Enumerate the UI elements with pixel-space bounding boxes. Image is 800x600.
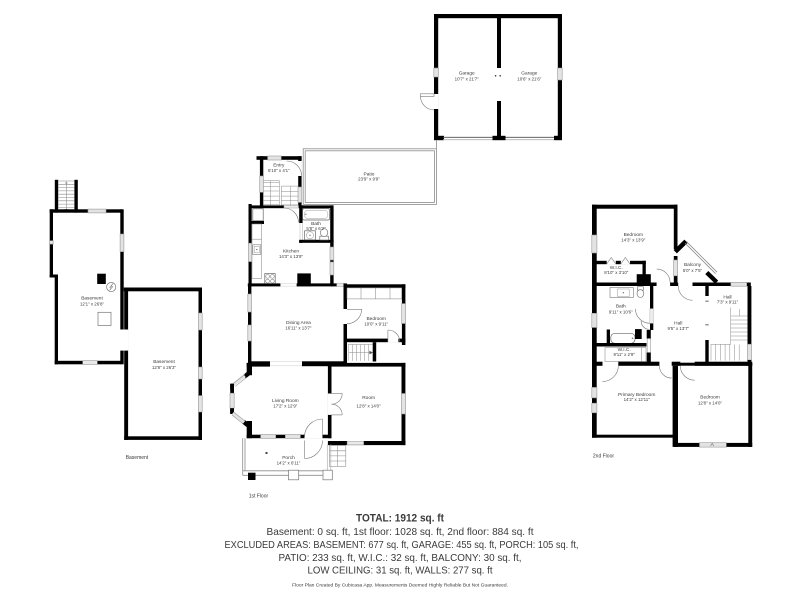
- svg-text:1st Floor: 1st Floor: [249, 493, 269, 499]
- svg-text:8'10" x 3'10": 8'10" x 3'10": [604, 270, 629, 275]
- svg-text:14'2" x 12'11": 14'2" x 12'11": [624, 397, 651, 402]
- svg-text:14'2" x 6'11": 14'2" x 6'11": [277, 461, 301, 466]
- svg-text:12'8" x 14'0": 12'8" x 14'0": [698, 400, 723, 405]
- svg-text:TOTAL: 1912 sq. ft: TOTAL: 1912 sq. ft: [356, 513, 444, 525]
- svg-text:6'10" x 4'1": 6'10" x 4'1": [268, 168, 290, 173]
- svg-text:2nd Floor: 2nd Floor: [593, 453, 614, 459]
- svg-text:9'11" x 2'9": 9'11" x 2'9": [614, 352, 636, 357]
- svg-text:Room: Room: [362, 395, 375, 401]
- svg-text:9'5" x 13'7": 9'5" x 13'7": [667, 326, 689, 331]
- svg-text:7'3" x 9'11": 7'3" x 9'11": [717, 300, 739, 305]
- svg-text:Basement: 0 sq. ft, 1st floor:: Basement: 0 sq. ft, 1st floor: 1028 sq. …: [267, 527, 534, 538]
- svg-text:12'8" x 14'0": 12'8" x 14'0": [357, 403, 382, 408]
- svg-text:14'3" x 13'9": 14'3" x 13'9": [621, 237, 646, 242]
- svg-text:LOW CEILING: 31 sq. ft, WALLS:: LOW CEILING: 31 sq. ft, WALLS: 277 sq. f…: [308, 566, 493, 577]
- svg-text:5'0" x 7'5": 5'0" x 7'5": [683, 268, 703, 273]
- svg-text:Basement: Basement: [126, 455, 149, 461]
- svg-text:Floor Plan Created By Cubicasa: Floor Plan Created By Cubicasa App. Meas…: [292, 582, 508, 588]
- svg-text:10'7" x 21'7": 10'7" x 21'7": [455, 77, 480, 82]
- svg-text:14'3" x 13'9": 14'3" x 13'9": [279, 254, 304, 259]
- svg-text:23'9" x 9'9": 23'9" x 9'9": [358, 176, 380, 181]
- svg-text:PATIO: 233 sq. ft, W.I.C.: 32: PATIO: 233 sq. ft, W.I.C.: 32 sq. ft, BA…: [279, 553, 522, 564]
- svg-text:10'0" x 9'11": 10'0" x 9'11": [364, 321, 388, 326]
- svg-text:12'8" x 26'3": 12'8" x 26'3": [152, 365, 177, 370]
- svg-text:10'6" x 21'6": 10'6" x 21'6": [517, 77, 542, 82]
- svg-text:12'1" x 26'8": 12'1" x 26'8": [80, 302, 105, 307]
- svg-text:9'11" x 10'6": 9'11" x 10'6": [609, 309, 633, 314]
- svg-text:Basement: Basement: [153, 359, 175, 365]
- svg-text:5'8" x 6'2": 5'8" x 6'2": [306, 226, 326, 231]
- svg-text:16'11" x 13'7": 16'11" x 13'7": [285, 325, 312, 330]
- svg-text:17'2" x 12'9": 17'2" x 12'9": [273, 404, 298, 409]
- svg-text:EXCLUDED AREAS: BASEMENT: 677: EXCLUDED AREAS: BASEMENT: 677 sq. ft, GA…: [225, 540, 579, 551]
